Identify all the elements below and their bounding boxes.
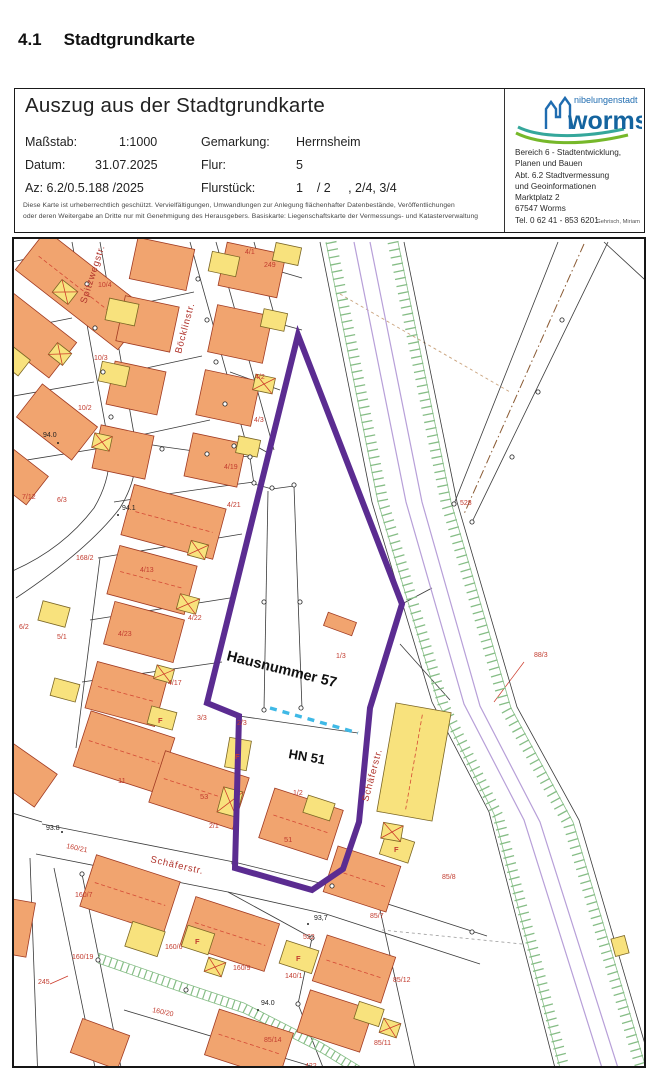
boundary-vertex-point xyxy=(252,481,256,485)
building xyxy=(312,935,395,1003)
address-line: Planen und Bauen xyxy=(515,158,621,169)
boundary-vertex-point xyxy=(205,318,209,322)
building xyxy=(50,678,80,702)
address-line: Bereich 6 - Stadtentwicklung, xyxy=(515,147,621,158)
label-az: Az: 6.2/0.5.188 /2025 xyxy=(25,181,144,195)
garage-f-label: F xyxy=(296,954,301,963)
boundary-vertex-point xyxy=(470,930,474,934)
parcel-number-label: 2/1 xyxy=(209,823,219,830)
parcel-number-label: 5/1 xyxy=(57,634,67,641)
boundary-vertex-point xyxy=(262,600,266,604)
copyright-line-1: Diese Karte ist urheberrechtlich geschüt… xyxy=(23,202,455,209)
railway-corridor xyxy=(320,242,644,1066)
parcel-number-label: 85/11 xyxy=(374,1040,391,1047)
map-labels-layer: 10/410/310/24/12494/24/37/126/3168/24/19… xyxy=(19,249,548,1066)
document-page: { "page": { "heading_number": "4.1", "he… xyxy=(0,0,655,1080)
parcel-line xyxy=(382,930,522,944)
cadastral-map: Böcklinstr. Spitzwegstr. Schäferstr. Sch… xyxy=(12,237,646,1068)
parcel-number-label: 249 xyxy=(264,262,276,269)
parcel-number-label: 85/8 xyxy=(442,874,456,881)
building xyxy=(208,305,273,364)
boundary-vertex-point xyxy=(292,483,296,487)
parcel-line xyxy=(454,242,558,504)
parcel-number-label: 4/19 xyxy=(224,464,238,471)
building xyxy=(121,484,226,559)
boundary-vertex-point xyxy=(160,447,164,451)
boundary-vertex-point xyxy=(109,415,113,419)
header-divider xyxy=(504,89,505,232)
parcel-number-label: 85/14 xyxy=(264,1037,282,1044)
boundary-vertex-point xyxy=(262,708,266,712)
parcel-number-label: 4/2 xyxy=(255,374,265,381)
garage-f-label: F xyxy=(235,752,240,761)
shed-with-cross xyxy=(204,957,226,977)
address-line: Abt. 6.2 Stadtvermessung xyxy=(515,170,621,181)
parcel-number-label: 6/2 xyxy=(19,624,29,631)
boundary-vertex-point xyxy=(96,958,100,962)
value-flur: 5 xyxy=(296,158,303,172)
boundary-vertex-point xyxy=(184,988,188,992)
section-number: 4.1 xyxy=(18,30,42,49)
worms-logo: nibelungenstadt worms xyxy=(512,89,642,145)
value-gemarkung: Herrnsheim xyxy=(296,135,361,149)
building xyxy=(259,788,344,860)
parcel-line xyxy=(239,716,358,733)
parcel-number-label: 85/7 xyxy=(370,913,384,920)
parcel-line xyxy=(604,242,644,291)
parcel-number-label: 10/4 xyxy=(98,282,112,289)
parcel-number-label: 88/3 xyxy=(534,652,548,659)
building xyxy=(196,370,260,427)
building xyxy=(38,601,70,628)
building xyxy=(70,1019,129,1066)
boundary-vertex-point xyxy=(560,318,564,322)
parcel-number-label: 10/3 xyxy=(94,355,108,362)
parcel-line xyxy=(464,244,584,514)
parcel-number-label: 160/9 xyxy=(233,965,251,972)
parcel-number-label: 3/3 xyxy=(197,715,207,722)
building xyxy=(16,384,97,460)
planned-boundary-dashed xyxy=(270,708,358,733)
parcel-number-label: 160/20 xyxy=(152,1007,175,1018)
parcel-number-label: 160/21 xyxy=(66,843,89,854)
garage-f-label: F xyxy=(394,845,399,854)
building xyxy=(14,741,57,807)
address-line: Marktplatz 2 xyxy=(515,192,621,203)
house-number-label: 51 xyxy=(284,835,292,844)
garage-f-label: F xyxy=(158,716,163,725)
boundary-vertex-point xyxy=(299,706,303,710)
author-name: Gehrisch, Miriam xyxy=(596,219,640,225)
parcel-number-label: 10/2 xyxy=(78,405,92,412)
boundary-vertex-point xyxy=(101,370,105,374)
boundary-vertex-point xyxy=(196,277,200,281)
map-header-box: Auszug aus der Stadtgrundkarte Maßstab: … xyxy=(14,88,645,233)
boundary-vertex-point xyxy=(80,872,84,876)
building xyxy=(184,433,246,487)
map-canvas: Böcklinstr. Spitzwegstr. Schäferstr. Sch… xyxy=(14,239,644,1066)
parcel-number-label: 168/2 xyxy=(76,555,94,562)
shed-with-cross xyxy=(92,433,113,451)
parcel-number-label: 6/3 xyxy=(57,497,67,504)
boundary-vertex-point xyxy=(330,884,334,888)
parcel-number-label: 140/1 xyxy=(285,973,303,980)
boundary-vertex-point xyxy=(296,1002,300,1006)
address-line: 67547 Worms xyxy=(515,203,621,214)
label-datum: Datum: xyxy=(25,158,65,172)
parcel-number-label: 160/7 xyxy=(75,892,93,899)
parcel-line xyxy=(30,858,38,1066)
parcel-number-label: 245 xyxy=(38,979,50,986)
label-hn-51: HN 51 xyxy=(287,746,326,767)
parcel-line xyxy=(136,420,210,436)
copyright-line-2: oder deren Weitergabe an Dritte nur mit … xyxy=(23,213,478,220)
office-address: Bereich 6 - Stadtentwicklung, Planen und… xyxy=(515,147,621,226)
parcel-number-label: 1/3 xyxy=(336,653,346,660)
parcel-number-label: 4/17 xyxy=(168,680,182,687)
parcel-line xyxy=(250,458,294,489)
building xyxy=(129,239,194,291)
value-flurstueck: 1 / 2 , 2/4, 3/4 xyxy=(296,181,397,195)
building xyxy=(377,703,451,821)
boundary-vertex-point xyxy=(536,390,540,394)
parcel-line xyxy=(50,976,68,984)
cathedral-icon xyxy=(546,98,570,129)
parcel-number-label: 2/3 xyxy=(237,720,247,727)
section-title: Stadtgrundkarte xyxy=(64,30,195,49)
parcel-line xyxy=(400,644,450,700)
boundary-vertex-point xyxy=(214,360,218,364)
boundary-vertex-point xyxy=(205,452,209,456)
parcel-number-label: 7/12 xyxy=(22,494,36,501)
parcel-line xyxy=(14,810,42,822)
elevation-label: 93,7 xyxy=(314,915,328,922)
parcel-number-label: 522 xyxy=(303,934,315,941)
building xyxy=(324,612,357,635)
elevation-label: 94.1 xyxy=(122,505,136,512)
parcel-number-label: 4/13 xyxy=(140,567,154,574)
label-hausnummer-57: Hausnummer 57 xyxy=(225,648,338,691)
elevation-label: 93.8 xyxy=(46,825,60,832)
boundary-vertex-point xyxy=(270,486,274,490)
parcel-number-label: 4/23 xyxy=(118,631,132,638)
elevation-label: 94.0 xyxy=(261,1000,275,1007)
parcel-number-label: 4/3 xyxy=(254,417,264,424)
elevation-label: 94.0 xyxy=(43,432,57,439)
office-block: nibelungenstadt worms Bereich 6 - Stadte… xyxy=(512,89,642,231)
label-gemarkung: Gemarkung: xyxy=(201,135,270,149)
parcel-number-label: 4/22 xyxy=(188,615,202,622)
boundary-vertex-point xyxy=(510,455,514,459)
value-datum: 31.07.2025 xyxy=(95,158,158,172)
shed-with-cross xyxy=(379,1018,401,1038)
street-label-schaeferstr-h: Schäferstr. xyxy=(149,854,204,877)
logo-subtext: nibelungenstadt xyxy=(574,95,638,105)
building xyxy=(611,935,629,956)
page-title: 4.1Stadtgrundkarte xyxy=(18,30,195,50)
boundary-vertex-point xyxy=(248,455,252,459)
boundary-vertex-point xyxy=(470,520,474,524)
building xyxy=(92,425,154,479)
garage-f-label: F xyxy=(195,937,200,946)
parcel-number-label: 422 xyxy=(305,1063,317,1066)
value-massstab: 1:1000 xyxy=(119,135,157,149)
house-number-label: 53 xyxy=(200,792,208,801)
parcel-number-label: 160/19 xyxy=(72,954,94,961)
address-line: und Geoinformationen xyxy=(515,181,621,192)
parcel-number-label: 160/6 xyxy=(165,944,183,951)
house-number-label: 11 xyxy=(118,776,126,785)
parcel-number-label: 528 xyxy=(460,500,472,507)
boundary-vertex-point xyxy=(298,600,302,604)
label-flur: Flur: xyxy=(201,158,226,172)
map-title: Auszug aus der Stadtgrundkarte xyxy=(25,94,325,118)
boundary-vertex-point xyxy=(452,502,456,506)
label-massstab: Maßstab: xyxy=(25,135,77,149)
logo-wordmark: worms xyxy=(567,107,642,135)
label-flurstueck: Flurstück: xyxy=(201,181,255,195)
parcel-number-label: 4/21 xyxy=(227,502,241,509)
parcel-number-label: 85/12 xyxy=(393,977,411,984)
parcel-number-label: 4/1 xyxy=(245,249,255,256)
boundary-vertex-point xyxy=(93,326,97,330)
shed-with-cross xyxy=(381,822,403,841)
parcel-number-label: 1/2 xyxy=(293,790,303,797)
boundary-vertex-point xyxy=(232,444,236,448)
boundary-vertex-point xyxy=(223,402,227,406)
